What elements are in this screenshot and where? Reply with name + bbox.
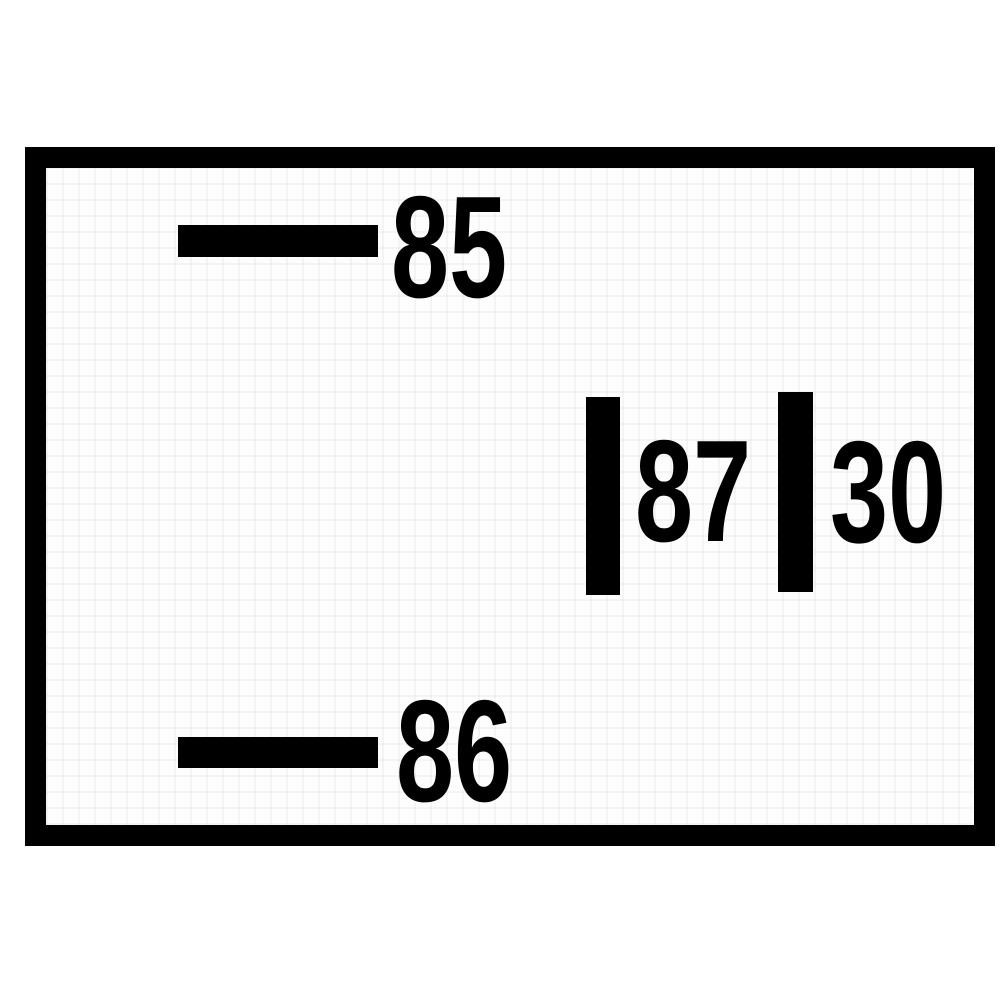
terminal-pin-30 bbox=[778, 392, 813, 592]
terminal-label-86: 86 bbox=[396, 679, 512, 824]
terminal-pin-87 bbox=[586, 397, 620, 595]
relay-pin-diagram: 85 86 87 30 bbox=[0, 0, 1000, 1000]
terminal-pin-86 bbox=[178, 737, 378, 768]
terminal-label-87: 87 bbox=[635, 419, 751, 564]
terminal-label-85: 85 bbox=[391, 175, 507, 320]
terminal-label-30: 30 bbox=[830, 420, 946, 565]
terminal-pin-85 bbox=[178, 225, 378, 257]
